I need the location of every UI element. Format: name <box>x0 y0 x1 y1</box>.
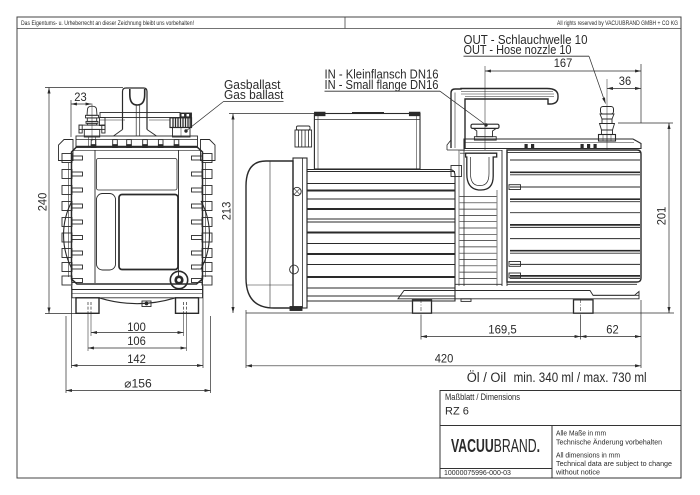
svg-text:OUT - Hose nozzle 10: OUT - Hose nozzle 10 <box>464 42 572 57</box>
svg-text:without notice: without notice <box>555 468 600 477</box>
svg-text:Gas ballast: Gas ballast <box>224 87 284 102</box>
svg-text:Alle Maße in mm: Alle Maße in mm <box>556 429 606 438</box>
svg-text:213: 213 <box>220 202 234 221</box>
svg-text:Das Eigentums- u. Urheberrecht: Das Eigentums- u. Urheberrecht an dieser… <box>21 21 194 27</box>
svg-text:100: 100 <box>127 320 146 334</box>
svg-text:240: 240 <box>36 193 50 212</box>
svg-text:VACUUBRAND.: VACUUBRAND. <box>451 436 540 456</box>
svg-text:23: 23 <box>74 90 87 104</box>
svg-text:Maßblatt / Dimensions: Maßblatt / Dimensions <box>445 392 520 402</box>
svg-text:⌀156: ⌀156 <box>124 377 152 391</box>
svg-text:201: 201 <box>655 207 669 226</box>
svg-text:All rights reserved by VACUUBR: All rights reserved by VACUUBRAND GMBH +… <box>557 21 678 27</box>
svg-text:IN - Small flange DN16: IN - Small flange DN16 <box>325 77 439 92</box>
svg-text:62: 62 <box>606 323 619 337</box>
svg-text:Öl / Oil: Öl / Oil <box>467 370 507 385</box>
svg-text:36: 36 <box>619 74 632 88</box>
svg-text:167: 167 <box>554 56 573 70</box>
svg-text:106: 106 <box>127 334 146 348</box>
svg-text:169,5: 169,5 <box>488 323 517 337</box>
svg-text:min. 340 ml / max. 730 ml: min. 340 ml / max. 730 ml <box>514 370 647 385</box>
svg-text:Technische Änderung vorbehalte: Technische Änderung vorbehalten <box>556 438 662 447</box>
svg-text:420: 420 <box>435 352 454 366</box>
svg-text:RZ 6: RZ 6 <box>445 406 469 418</box>
svg-text:10000075996-000-03: 10000075996-000-03 <box>444 470 511 477</box>
svg-text:142: 142 <box>127 352 146 366</box>
